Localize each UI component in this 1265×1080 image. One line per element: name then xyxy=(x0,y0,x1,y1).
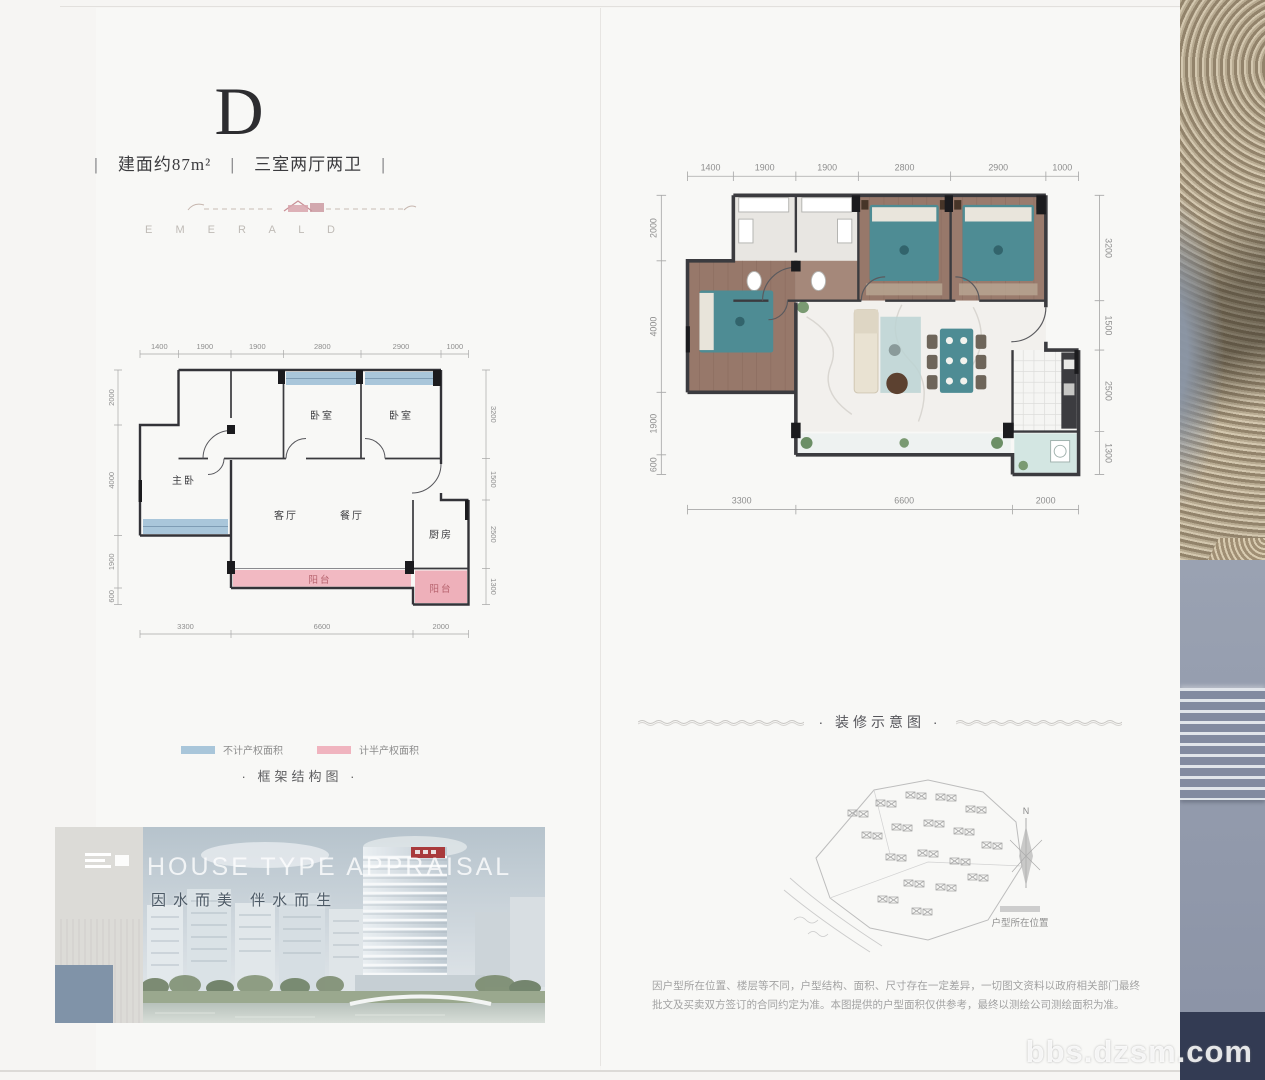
svg-text:1900: 1900 xyxy=(817,162,837,172)
svg-text:2800: 2800 xyxy=(895,162,915,172)
spec-divider: | xyxy=(381,155,385,174)
svg-text:1900: 1900 xyxy=(107,553,116,570)
legend: 不计产权面积 计半产权面积 xyxy=(60,742,540,757)
legend-no-property: 不计产权面积 xyxy=(181,742,283,757)
svg-text:600: 600 xyxy=(649,457,659,472)
brand-emblem-icon xyxy=(180,194,420,222)
caption-structure: · 框架结构图 · xyxy=(60,766,540,785)
svg-text:3300: 3300 xyxy=(177,622,194,631)
legend-pink-swatch xyxy=(317,746,351,754)
svg-text:2800: 2800 xyxy=(314,342,331,351)
artwork-blue-field xyxy=(1180,560,1265,1012)
artwork-metal-band xyxy=(1180,688,1265,800)
svg-text:4000: 4000 xyxy=(107,472,116,489)
svg-text:2000: 2000 xyxy=(649,218,659,238)
svg-text:1000: 1000 xyxy=(1052,162,1072,172)
label-bedroom-a: 卧室 xyxy=(310,409,334,422)
label-master: 主卧 xyxy=(172,474,196,487)
label-balcony-main: 阳台 xyxy=(308,574,331,586)
photo-title: HOUSE TYPE APPRAISAL xyxy=(147,853,512,882)
label-kitchen: 厨房 xyxy=(429,528,453,541)
artwork-contours xyxy=(1180,0,1265,560)
top-divider xyxy=(60,6,1180,7)
disclaimer-text: 因户型所在位置、楼层等不同，户型结构、面积、尺寸存在一定差异，一切图文资料以政府… xyxy=(652,977,1140,1015)
brochure-spread: D | 建面约87m² | 三室两厅两卫 | E M E R A L D xyxy=(0,0,1265,1080)
watermark: bbs.dzsm.com xyxy=(1026,1034,1253,1070)
unit-rooms: 三室两厅两卫 xyxy=(254,155,362,174)
photo-left-panel xyxy=(55,827,143,1023)
svg-text:4000: 4000 xyxy=(649,317,659,337)
wall-piers xyxy=(139,370,469,574)
svg-text:1500: 1500 xyxy=(1103,316,1113,336)
site-plan: N 户型所在位置 xyxy=(778,770,1058,965)
svg-text:3200: 3200 xyxy=(489,406,498,423)
site-roads xyxy=(784,878,882,952)
site-boundary xyxy=(816,780,1022,940)
north-arrow-icon: N xyxy=(1010,806,1042,888)
unit-specs: | 建面约87m² | 三室两厅两卫 | xyxy=(0,150,480,175)
legend-blue-label: 不计产权面积 xyxy=(223,742,283,757)
unit-type-title: D xyxy=(0,72,480,151)
photo-slogan: 因水而美 伴水而生 xyxy=(151,889,338,910)
svg-text:1900: 1900 xyxy=(249,342,266,351)
svg-text:1400: 1400 xyxy=(701,162,721,172)
location-label: 户型所在位置 xyxy=(991,917,1048,929)
caption-decoration: · 装修示意图 · xyxy=(818,712,941,732)
building-rendering: HOUSE TYPE APPRAISAL 因水而美 伴水而生 xyxy=(55,827,545,1023)
svg-text:1900: 1900 xyxy=(755,162,775,172)
svg-text:1500: 1500 xyxy=(489,471,498,488)
svg-text:2500: 2500 xyxy=(1103,381,1113,401)
brand-name: E M E R A L D xyxy=(0,224,480,236)
svg-text:3200: 3200 xyxy=(1103,238,1113,258)
svg-text:2000: 2000 xyxy=(107,389,116,406)
svg-text:1300: 1300 xyxy=(489,578,498,595)
label-bedroom-b: 卧室 xyxy=(389,409,413,422)
svg-text:1300: 1300 xyxy=(1103,443,1113,463)
svg-text:1900: 1900 xyxy=(649,414,659,434)
site-buildings xyxy=(848,792,1002,915)
decorative-artwork xyxy=(1180,0,1265,1080)
wave-ornament-icon xyxy=(956,717,1122,727)
spec-divider: | xyxy=(94,155,98,174)
legend-blue-swatch xyxy=(181,746,215,754)
label-dining: 餐厅 xyxy=(340,509,364,522)
svg-text:N: N xyxy=(1023,806,1030,816)
location-highlight-bar xyxy=(1000,906,1040,912)
bottom-divider xyxy=(0,1070,1182,1072)
svg-text:2000: 2000 xyxy=(1036,496,1056,506)
legend-pink-label: 计半产权面积 xyxy=(359,742,419,757)
door-arcs xyxy=(203,431,441,494)
svg-text:1900: 1900 xyxy=(196,342,213,351)
svg-text:1400: 1400 xyxy=(151,342,168,351)
center-divider xyxy=(600,8,601,1066)
floorplan-decorated: 1400 1900 1900 2800 2900 1000 3300 6600 … xyxy=(628,150,1128,543)
interior-walls xyxy=(179,370,469,569)
svg-text:2900: 2900 xyxy=(988,162,1008,172)
legend-half-property: 计半产权面积 xyxy=(317,742,419,757)
svg-text:2900: 2900 xyxy=(393,342,410,351)
wave-ornament-icon xyxy=(638,717,804,727)
svg-text:6600: 6600 xyxy=(894,496,914,506)
label-living: 客厅 xyxy=(274,509,298,522)
spec-divider: | xyxy=(230,155,234,174)
caption-decoration-row: · 装修示意图 · xyxy=(638,712,1122,732)
svg-text:3300: 3300 xyxy=(732,496,752,506)
floorplan-schematic: 主卧 卧室 卧室 客厅 餐厅 厨房 阳台 阳台 1400 1900 1900 2… xyxy=(90,332,510,662)
svg-text:6600: 6600 xyxy=(314,622,331,631)
svg-text:1000: 1000 xyxy=(446,342,463,351)
svg-text:600: 600 xyxy=(107,590,116,603)
unit-area: 建面约87m² xyxy=(118,155,211,174)
label-balcony-side: 阳台 xyxy=(429,583,452,595)
svg-text:2000: 2000 xyxy=(432,622,449,631)
svg-text:2500: 2500 xyxy=(489,526,498,543)
